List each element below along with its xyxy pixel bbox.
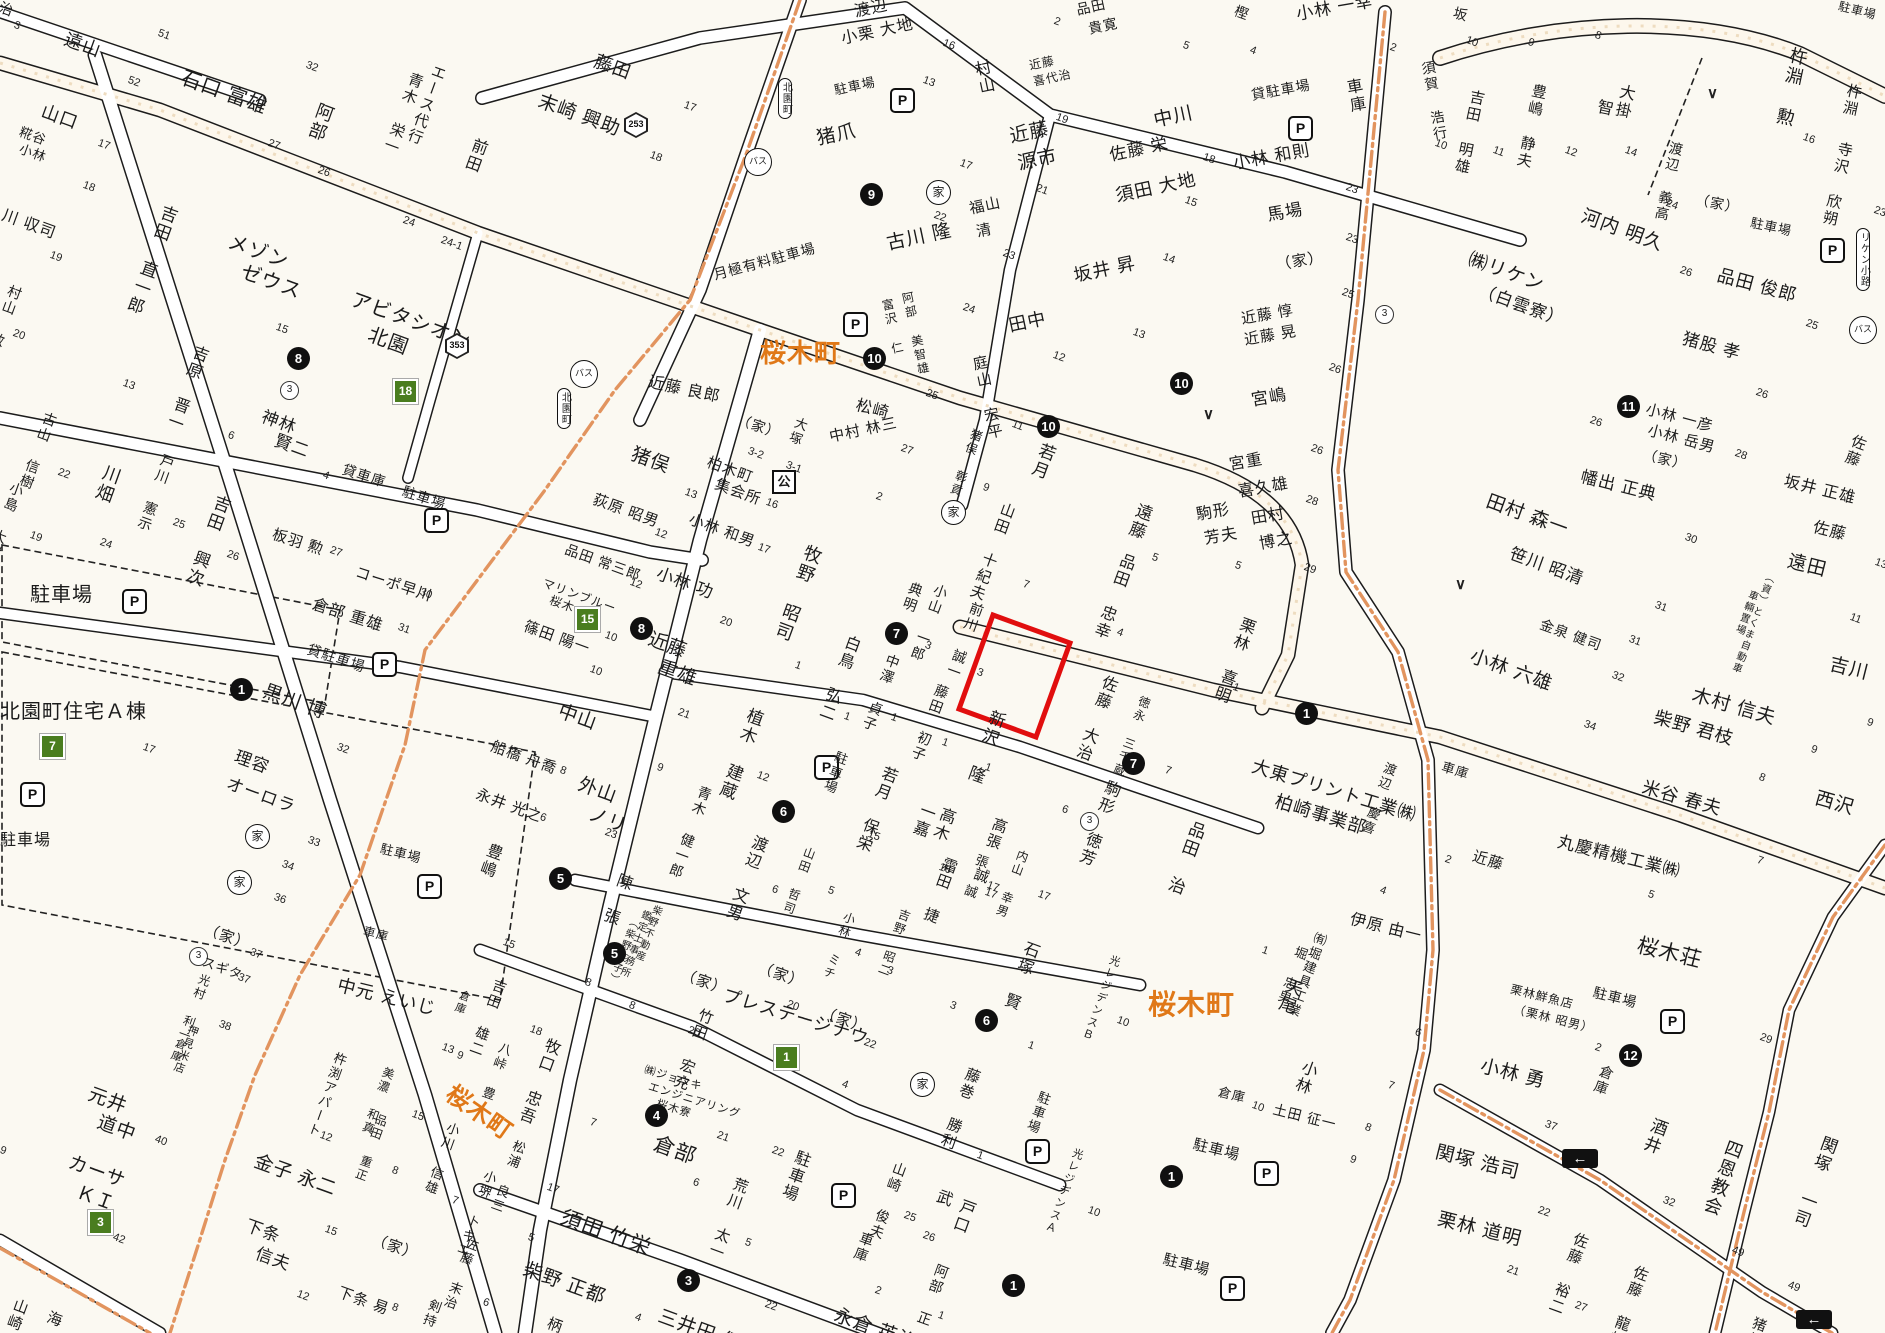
block-number-badge: 1 xyxy=(1295,702,1318,725)
one-way-arrow-icon: ← xyxy=(1562,1149,1598,1168)
road-surface xyxy=(575,880,1140,985)
block-number-badge: 5 xyxy=(603,942,626,965)
block-number-badge: 1 xyxy=(230,678,253,701)
parking-icon: P xyxy=(122,589,147,614)
block-number-badge: 11 xyxy=(1617,395,1640,418)
block-number-badge: 7 xyxy=(885,622,908,645)
bus-stop-icon: バス xyxy=(570,360,598,388)
parking-icon: P xyxy=(1025,1139,1050,1164)
map-label: 駐車場 xyxy=(30,585,93,606)
house-icon: 家 xyxy=(245,824,270,849)
block-number-badge: 1 xyxy=(1160,1165,1183,1188)
bus-stop-icon: バス xyxy=(744,148,772,176)
map-label: 駐車場 xyxy=(0,833,51,850)
parking-icon: P xyxy=(424,508,449,533)
map-label: 清 xyxy=(975,222,994,241)
parking-icon: P xyxy=(890,88,915,113)
block-number-badge: 10 xyxy=(1170,372,1193,395)
block-number-badge: 6 xyxy=(975,1009,998,1032)
map-label: 桜木町 xyxy=(760,340,841,367)
house-number-badge: 1 xyxy=(774,1045,799,1070)
road-name-oval: 北園町 xyxy=(557,388,571,429)
road-mark-icon: ∨ xyxy=(1707,86,1718,102)
parking-icon: P xyxy=(1660,1009,1685,1034)
house-number-badge: 15 xyxy=(575,607,600,632)
parking-icon: P xyxy=(1254,1161,1279,1186)
house-icon: 家 xyxy=(910,1072,935,1097)
house-icon: 家 xyxy=(941,500,966,525)
parking-icon: P xyxy=(20,782,45,807)
map-label: 桜木町 xyxy=(1148,990,1235,1019)
house-icon: 家 xyxy=(227,870,252,895)
house-icon: 家 xyxy=(926,180,951,205)
map-label: 北園町住宅Ａ棟 xyxy=(0,702,147,723)
block-number-badge: 10 xyxy=(1037,415,1060,438)
map-label: 坂 xyxy=(1451,5,1469,24)
parking-icon: P xyxy=(372,652,397,677)
road-mark-icon: ∨ xyxy=(1203,407,1214,423)
parking-icon: P xyxy=(1220,1276,1245,1301)
one-way-arrow-icon: ← xyxy=(1796,1310,1832,1329)
parking-icon: P xyxy=(831,1183,856,1208)
house-number-badge: 18 xyxy=(393,379,418,404)
block-number-badge: 10 xyxy=(863,347,886,370)
block-number-badge: 1 xyxy=(1002,1274,1025,1297)
block-number-badge: 4 xyxy=(645,1104,668,1127)
road-name-oval: 北園町 xyxy=(778,78,792,119)
house-number-badge: 7 xyxy=(40,734,65,759)
map-label: 智 xyxy=(1592,97,1612,118)
small-circle-number: 3 xyxy=(1375,305,1394,324)
road-name-oval: リケン小路 xyxy=(1856,228,1870,291)
block-number-badge: 7 xyxy=(1122,752,1145,775)
small-circle-number: 3 xyxy=(280,381,299,400)
house-number-badge: 3 xyxy=(88,1210,113,1235)
parking-icon: P xyxy=(1288,116,1313,141)
block-number-badge: 3 xyxy=(677,1269,700,1292)
bus-stop-icon: バス xyxy=(1849,316,1877,344)
road-mark-icon: ∨ xyxy=(1455,577,1466,593)
block-number-badge: 5 xyxy=(549,867,572,890)
road-surface xyxy=(408,233,478,478)
road-surface xyxy=(1440,26,1885,96)
parking-icon: P xyxy=(843,312,868,337)
residential-map-canvas[interactable]: 治3遠山5152山口17糀谷小林18川 収司19村山 敏夫20石口 富雄3227… xyxy=(0,0,1885,1333)
block-number-badge: 6 xyxy=(772,800,795,823)
parking-icon: P xyxy=(1820,238,1845,263)
parking-icon: P xyxy=(417,874,442,899)
block-number-badge: 8 xyxy=(287,347,310,370)
block-number-badge: 12 xyxy=(1619,1044,1642,1067)
block-number-badge: 9 xyxy=(860,183,883,206)
